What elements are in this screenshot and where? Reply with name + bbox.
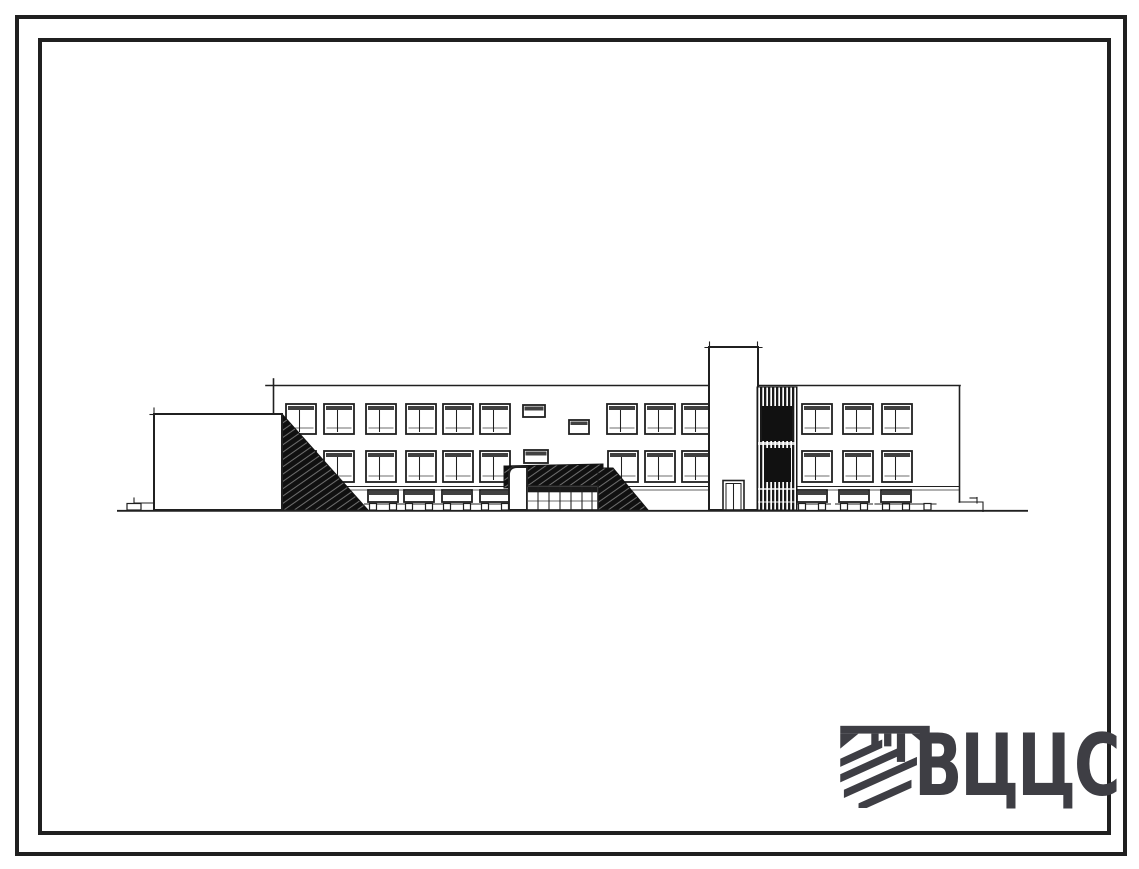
watermark-logo: ВЦЦС — [836, 716, 1098, 816]
logo-text: ВЦЦС — [914, 716, 1118, 816]
scanned-drawing-sheet: { "sheet": { "description_text": "", "lo… — [0, 0, 1139, 869]
